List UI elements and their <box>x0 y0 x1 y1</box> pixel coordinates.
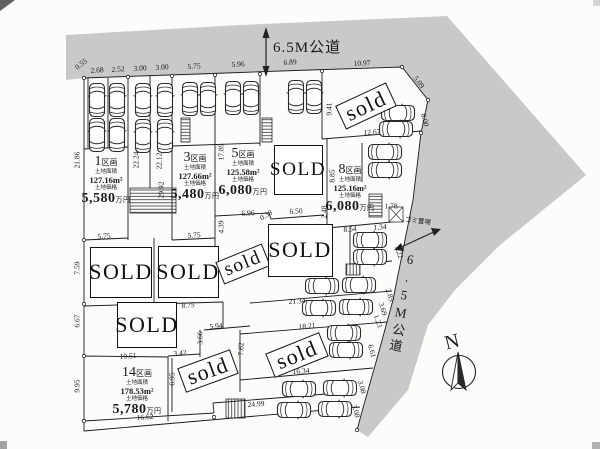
car-icon <box>354 231 387 250</box>
stairs-icon <box>130 188 176 213</box>
car-icon <box>319 400 352 419</box>
car-icon <box>278 401 311 420</box>
garbage-area-icon <box>389 207 403 222</box>
car-icon <box>340 298 373 317</box>
car-icon <box>134 120 153 153</box>
car-icon <box>108 119 127 152</box>
car-icon <box>224 82 243 115</box>
stairs-icon <box>226 399 245 418</box>
car-icon <box>88 119 107 152</box>
car-icon <box>88 84 107 117</box>
car-icon <box>306 277 339 296</box>
compass-icon <box>443 352 476 390</box>
car-icon <box>343 276 376 295</box>
car-icon <box>382 104 415 123</box>
car-icon <box>303 299 336 318</box>
car-icon <box>287 81 306 114</box>
stairs-icon <box>181 118 190 142</box>
car-icon <box>324 379 357 398</box>
road-surface <box>66 16 586 437</box>
car-icon <box>369 161 402 180</box>
stairs-icon <box>262 118 272 142</box>
car-icon <box>108 84 127 117</box>
car-icon <box>305 81 324 114</box>
stairs-icon <box>346 264 360 275</box>
car-icon <box>283 380 316 399</box>
car-icon <box>134 84 153 117</box>
subdivision-map: 6.5M公道 6.5M公道 ゴミ置場 N 1区画土地面積127.16m²土地価格… <box>0 0 600 449</box>
stairs-icon <box>369 194 382 217</box>
car-icon <box>380 120 413 139</box>
car-icon <box>242 82 261 115</box>
car-icon <box>156 84 175 117</box>
plot-map-svg <box>0 0 600 449</box>
car-icon <box>369 143 402 162</box>
car-icon <box>181 83 200 116</box>
car-icon <box>330 341 363 360</box>
car-icon <box>156 120 175 153</box>
car-icon <box>199 83 218 116</box>
car-icon <box>354 248 387 267</box>
car-icon <box>328 324 361 343</box>
